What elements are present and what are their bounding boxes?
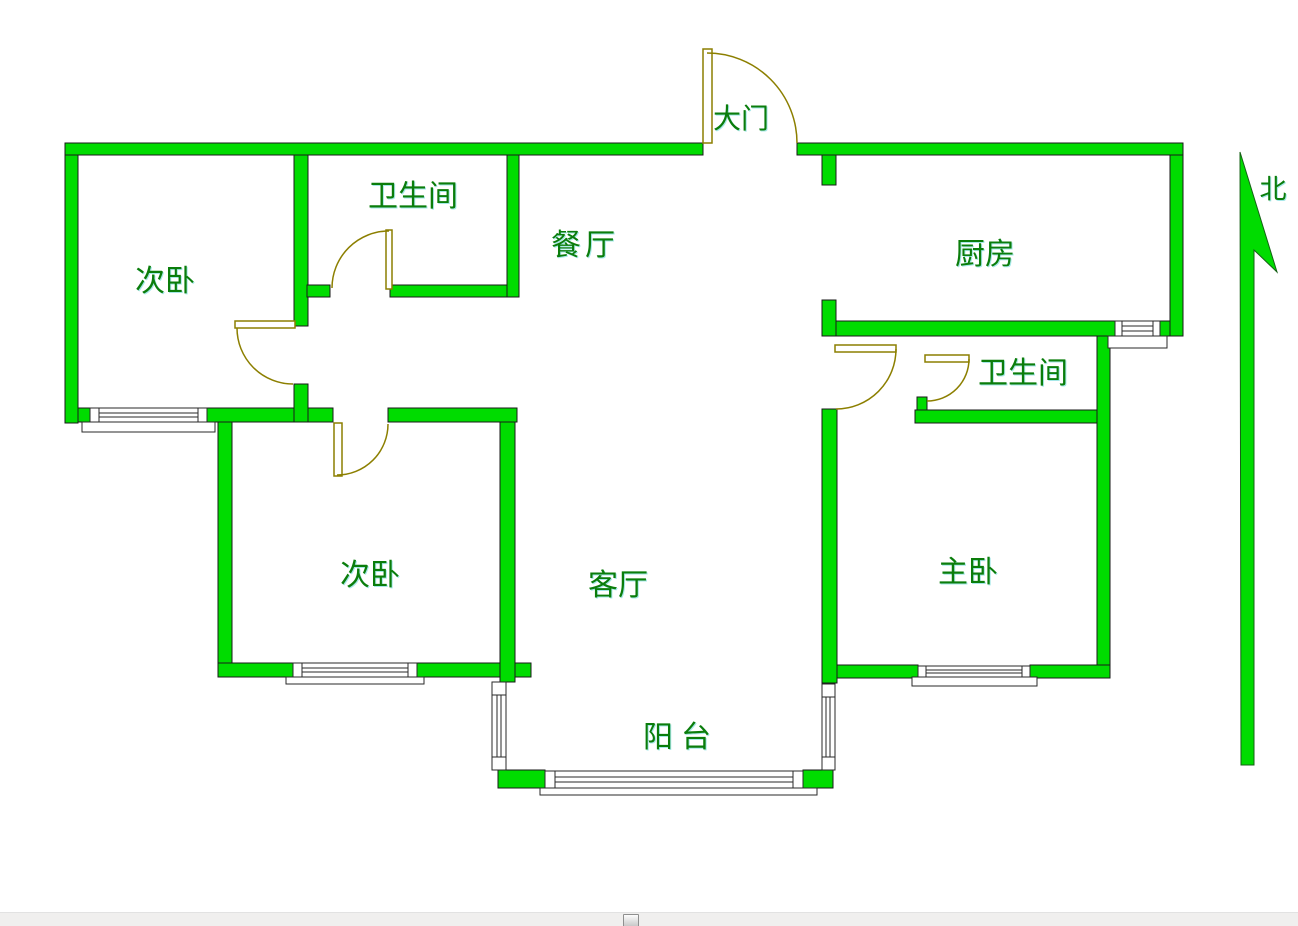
wall-bath1-bottom-left bbox=[307, 285, 330, 297]
label-bathroom-right: 卫生间 bbox=[978, 359, 1068, 389]
wall-master-bottom-left bbox=[837, 665, 918, 678]
wall-left-outer bbox=[65, 155, 78, 423]
label-kitchen: 厨房 bbox=[955, 240, 1015, 270]
wall-mid-c bbox=[388, 408, 517, 422]
door-bedroom1 bbox=[235, 321, 295, 384]
floor-plan-viewport: 大门 卫生间 餐厅 厨房 北 次卧 卫生间 次卧 客厅 主卧 阳台 bbox=[0, 0, 1298, 926]
label-bathroom-top: 卫生间 bbox=[368, 182, 458, 212]
north-arrow-icon bbox=[1240, 152, 1277, 765]
wall-bath1-right bbox=[507, 155, 519, 297]
window-bedroom1 bbox=[82, 408, 215, 432]
wall-bed2-bottom-left bbox=[218, 663, 293, 677]
horizontal-scrollbar-thumb[interactable] bbox=[623, 914, 639, 926]
door-master-suite bbox=[835, 345, 896, 409]
windows bbox=[82, 321, 1167, 795]
wall-top-left-segment bbox=[65, 143, 703, 155]
window-balcony-front bbox=[540, 771, 817, 795]
label-dining-room: 餐厅 bbox=[551, 231, 619, 261]
wall-mid-b bbox=[207, 408, 333, 422]
wall-kitchen-left-lower bbox=[822, 300, 836, 336]
wall-master-left bbox=[822, 409, 837, 683]
label-north: 北 bbox=[1260, 177, 1287, 204]
wall-corridor-lower bbox=[294, 384, 308, 422]
wall-bath2-bottom bbox=[915, 410, 1110, 423]
wall-bath1-bottom-right bbox=[390, 285, 507, 297]
wall-top-right-segment bbox=[797, 143, 1183, 155]
door-bedroom2 bbox=[334, 423, 388, 476]
door-bathroom-right bbox=[925, 355, 969, 401]
wall-bed2-left bbox=[218, 422, 232, 677]
wall-master-bottom-right bbox=[1030, 665, 1110, 678]
wall-balcony-corner-right bbox=[803, 770, 833, 788]
wall-kitchen-stub bbox=[822, 155, 836, 185]
window-bedroom2 bbox=[286, 663, 424, 684]
door-bathroom-top bbox=[332, 230, 392, 289]
label-living-room: 客厅 bbox=[588, 571, 648, 601]
label-bedroom-top-left: 次卧 bbox=[135, 267, 195, 297]
walls bbox=[65, 143, 1183, 788]
window-balcony-right bbox=[822, 684, 835, 770]
label-balcony: 阳台 bbox=[643, 723, 719, 753]
window-kitchen bbox=[1108, 321, 1167, 348]
wall-bed2-right bbox=[500, 422, 515, 682]
label-master-bedroom: 主卧 bbox=[938, 558, 998, 588]
wall-kitchen-bottom bbox=[836, 321, 1115, 336]
horizontal-scrollbar-track[interactable] bbox=[0, 912, 1298, 926]
wall-kitchen-right-outer bbox=[1170, 155, 1183, 336]
label-bedroom-bottom-left: 次卧 bbox=[340, 561, 400, 591]
wall-balcony-corner-left bbox=[498, 770, 545, 788]
wall-corridor-upper bbox=[294, 155, 308, 326]
wall-right-outer bbox=[1097, 336, 1110, 678]
label-main-door: 大门 bbox=[713, 105, 769, 133]
window-balcony-left bbox=[492, 682, 506, 770]
window-master-bedroom bbox=[912, 666, 1037, 686]
floor-plan-drawing bbox=[0, 0, 1298, 926]
wall-mid-a bbox=[78, 408, 90, 422]
